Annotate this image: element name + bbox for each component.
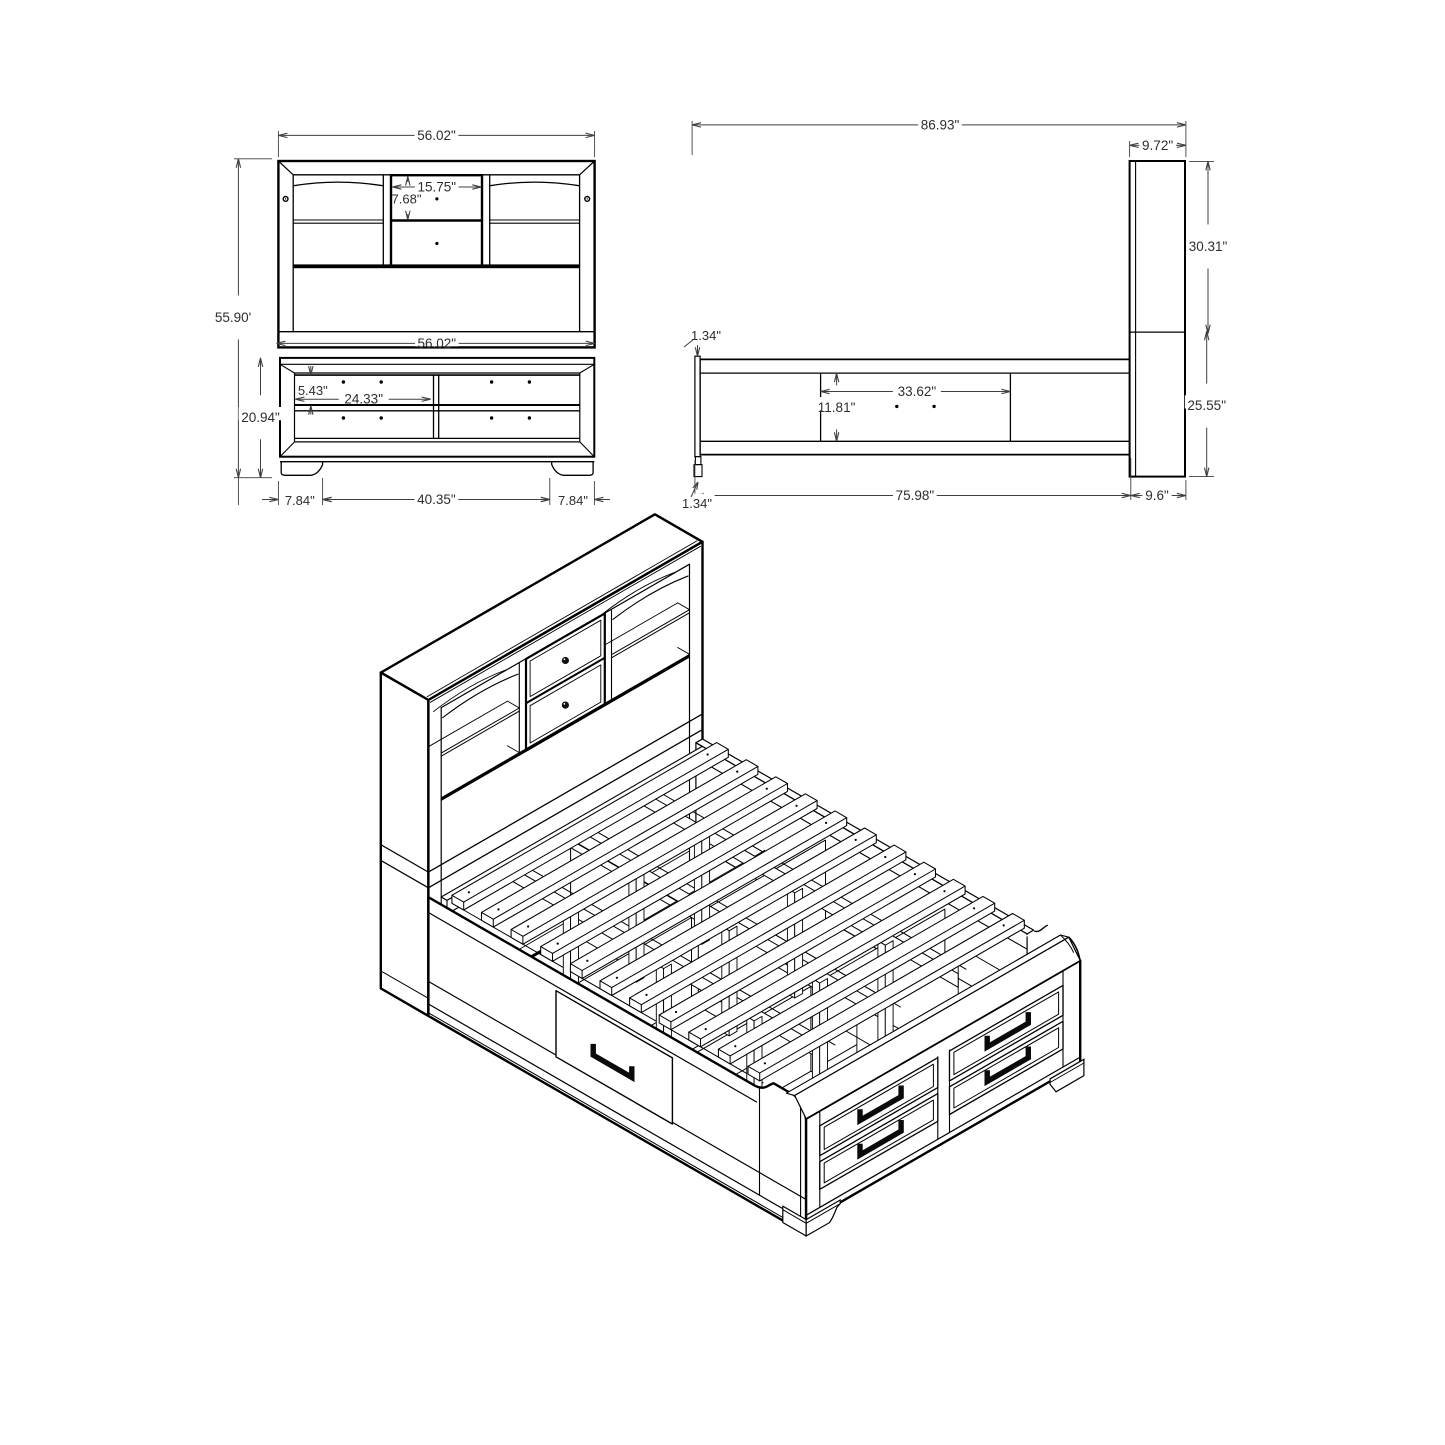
svg-text:75.98": 75.98" bbox=[896, 488, 935, 503]
svg-text:33.62": 33.62" bbox=[898, 384, 937, 399]
svg-text:1.34": 1.34" bbox=[682, 496, 712, 511]
svg-text:86.93": 86.93" bbox=[921, 117, 960, 132]
svg-text:30.31": 30.31" bbox=[1189, 239, 1228, 254]
svg-text:9.6": 9.6" bbox=[1145, 488, 1169, 503]
svg-text:11.81": 11.81" bbox=[818, 400, 856, 415]
svg-text:1.34": 1.34" bbox=[691, 328, 721, 343]
svg-text:7.68": 7.68" bbox=[392, 192, 422, 207]
svg-text:9.72": 9.72" bbox=[1142, 138, 1173, 153]
svg-text:25.55": 25.55" bbox=[1187, 398, 1226, 413]
svg-text:56.02": 56.02" bbox=[417, 128, 456, 143]
svg-text:40.35": 40.35" bbox=[417, 492, 456, 507]
svg-text:20.94": 20.94" bbox=[241, 410, 280, 425]
svg-text:7.84": 7.84" bbox=[558, 493, 588, 508]
svg-text:55.90': 55.90' bbox=[215, 310, 251, 325]
svg-text:15.75": 15.75" bbox=[418, 180, 457, 195]
svg-text:56.02": 56.02" bbox=[418, 336, 457, 351]
svg-text:5.43": 5.43" bbox=[298, 383, 328, 398]
svg-text:24.33": 24.33" bbox=[344, 392, 383, 407]
svg-text:7.84": 7.84" bbox=[285, 493, 315, 508]
